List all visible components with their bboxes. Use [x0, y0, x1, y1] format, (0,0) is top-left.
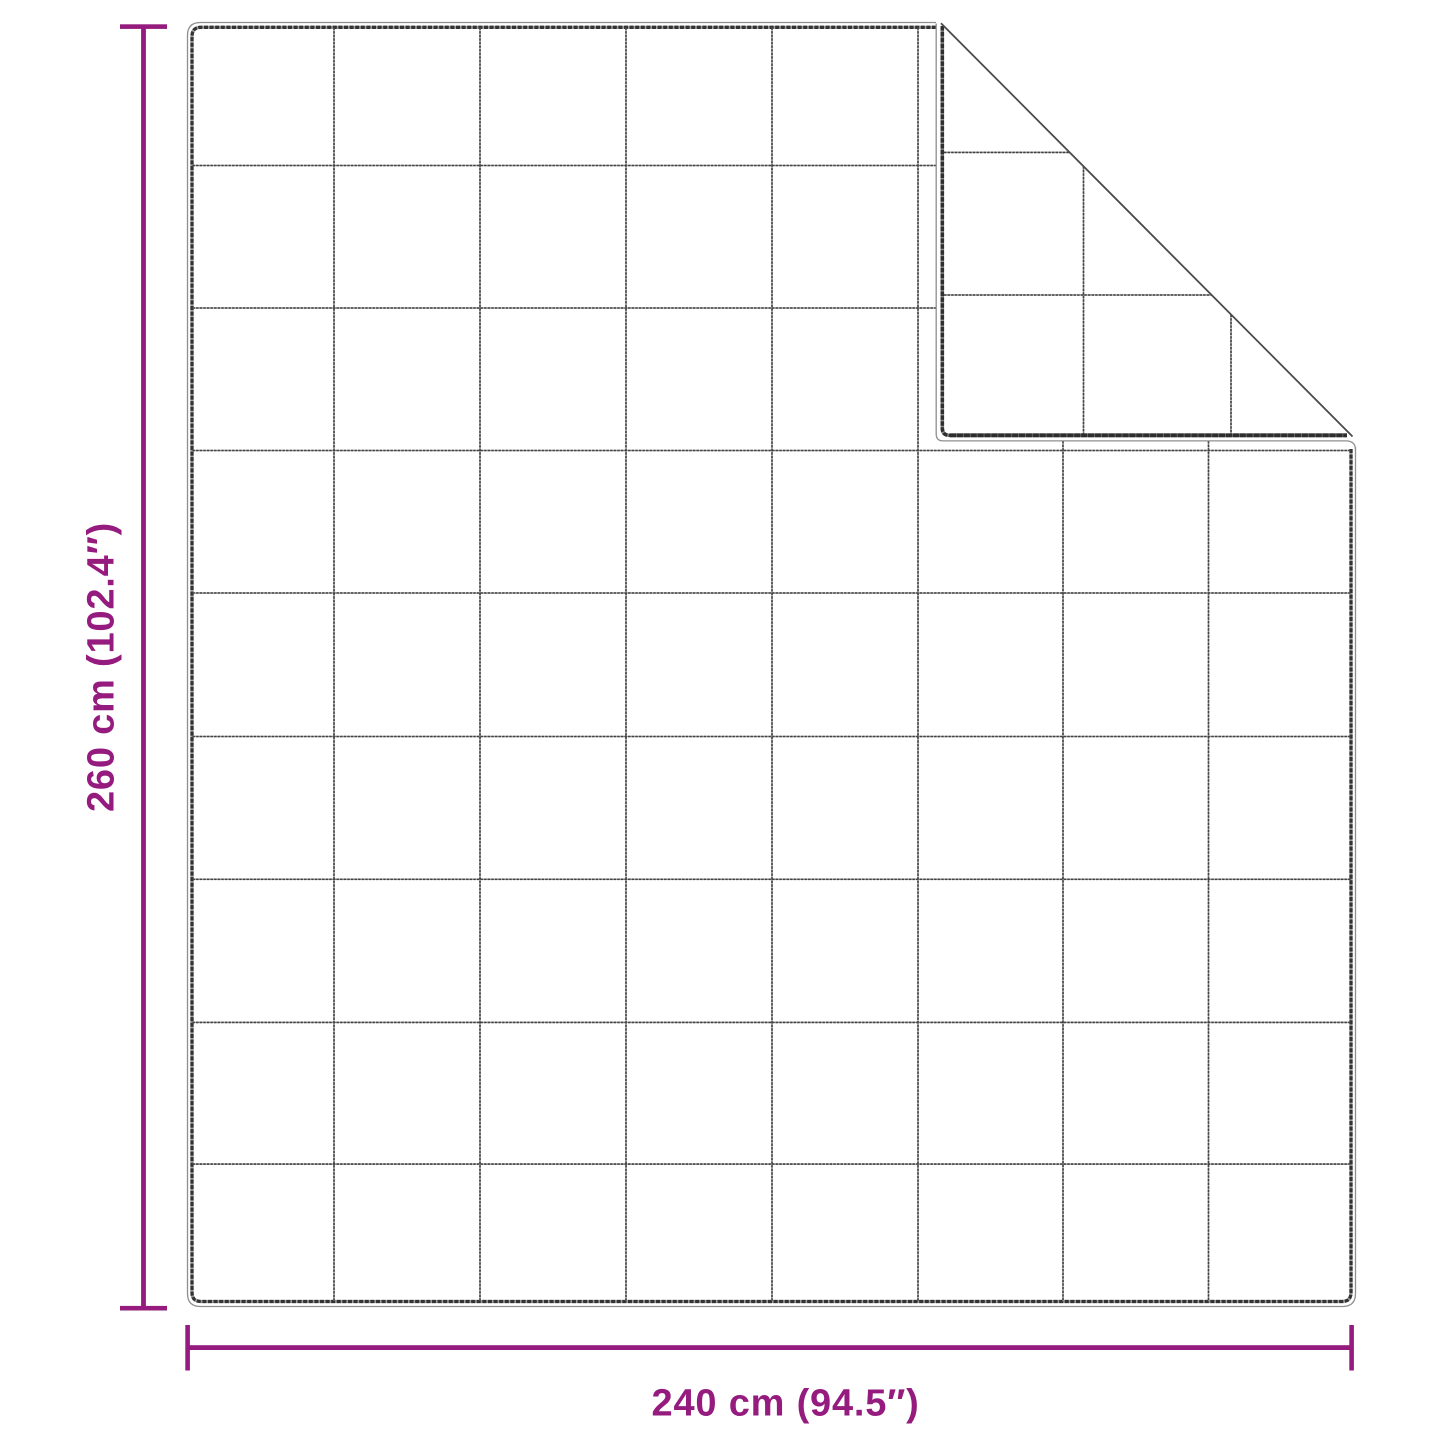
svg-text:260 cm (102.4″): 260 cm (102.4″) — [81, 522, 123, 812]
svg-text:240 cm (94.5″): 240 cm (94.5″) — [652, 1382, 920, 1424]
